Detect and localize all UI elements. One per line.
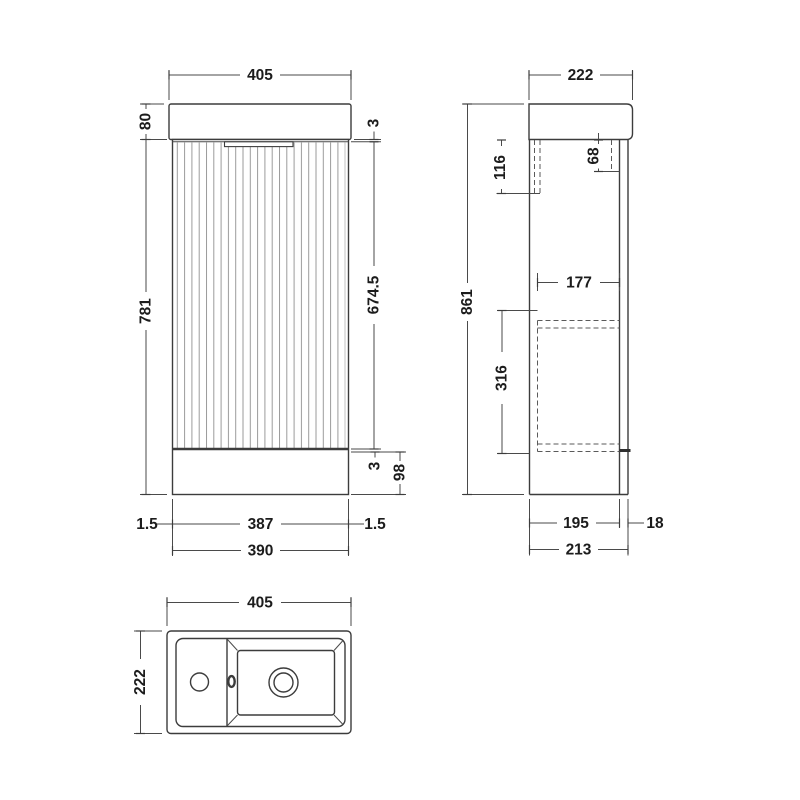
basin-top-side (529, 104, 633, 140)
dim-side-internal-height: 316 (494, 311, 538, 454)
technical-drawing-page: 405 80 781 3 (0, 0, 800, 800)
front-view: 405 80 781 3 (136, 67, 408, 560)
dim-label-front-left-gap: 1.5 (136, 516, 158, 533)
dim-label-side-carcass-depth: 195 (563, 515, 589, 532)
dim-side-carcass-depth-row: 195 18 (530, 499, 664, 556)
dim-label-front-door-bottom-gap: 3 (367, 461, 384, 470)
dim-label-plan-width: 405 (247, 595, 273, 612)
cabinet-carcass-side (530, 140, 631, 495)
dim-label-side-door-thickness: 18 (646, 515, 664, 532)
basin-top-front (169, 104, 351, 140)
dim-front-top-width: 405 (169, 67, 351, 100)
dim-front-door-top-gap: 3 (351, 118, 383, 141)
dim-label-front-door-top-gap: 3 (366, 118, 383, 127)
basin-outline-plan (167, 631, 351, 734)
dim-front-door-height: 674.5 (351, 142, 383, 449)
dim-label-front-base-width: 390 (248, 543, 274, 560)
dim-label-front-door-width: 387 (248, 516, 274, 533)
dim-front-plinth-height: 98 (351, 452, 409, 495)
dim-label-front-door-height: 674.5 (366, 275, 383, 314)
dim-label-side-basin-depth-front: 68 (586, 147, 603, 165)
dim-label-side-basin-depth-back: 116 (492, 155, 509, 180)
dim-label-front-top-width: 405 (247, 67, 273, 84)
fluted-door (173, 142, 349, 449)
dim-side-internal-depth: 177 (538, 273, 620, 292)
dim-plan-width: 405 (167, 595, 351, 627)
door-handle-recess (225, 142, 294, 147)
dim-front-base-width: 390 (173, 543, 349, 560)
dim-label-side-total-height: 861 (459, 289, 476, 315)
side-view: 222 861 116 68 (459, 67, 664, 559)
dim-side-top-depth: 222 (529, 67, 633, 100)
dim-label-side-top-depth: 222 (568, 67, 594, 84)
dim-label-front-plinth-height: 98 (392, 464, 409, 482)
dim-label-front-cabinet-height: 781 (138, 298, 155, 324)
dim-front-basin-height: 80 (138, 104, 168, 140)
dim-side-cabinet-depth: 213 (530, 542, 629, 559)
dim-label-front-right-gap: 1.5 (364, 516, 386, 533)
vanity-unit-technical-drawing: 405 80 781 3 (0, 0, 800, 800)
dim-plan-depth: 222 (132, 631, 162, 734)
dim-label-side-cabinet-depth: 213 (566, 542, 592, 559)
dim-label-plan-depth: 222 (132, 669, 149, 695)
dim-side-basin-depth-back: 116 (492, 140, 530, 194)
dim-front-cabinet-height: 781 (138, 140, 168, 495)
dim-label-side-internal-height: 316 (494, 365, 511, 391)
plan-view: 405 222 (132, 595, 351, 734)
dim-label-front-basin-height: 80 (138, 113, 155, 130)
dim-label-side-internal-depth: 177 (566, 275, 592, 292)
door-flutes (177, 143, 346, 449)
hidden-cavity-lines (538, 321, 620, 452)
